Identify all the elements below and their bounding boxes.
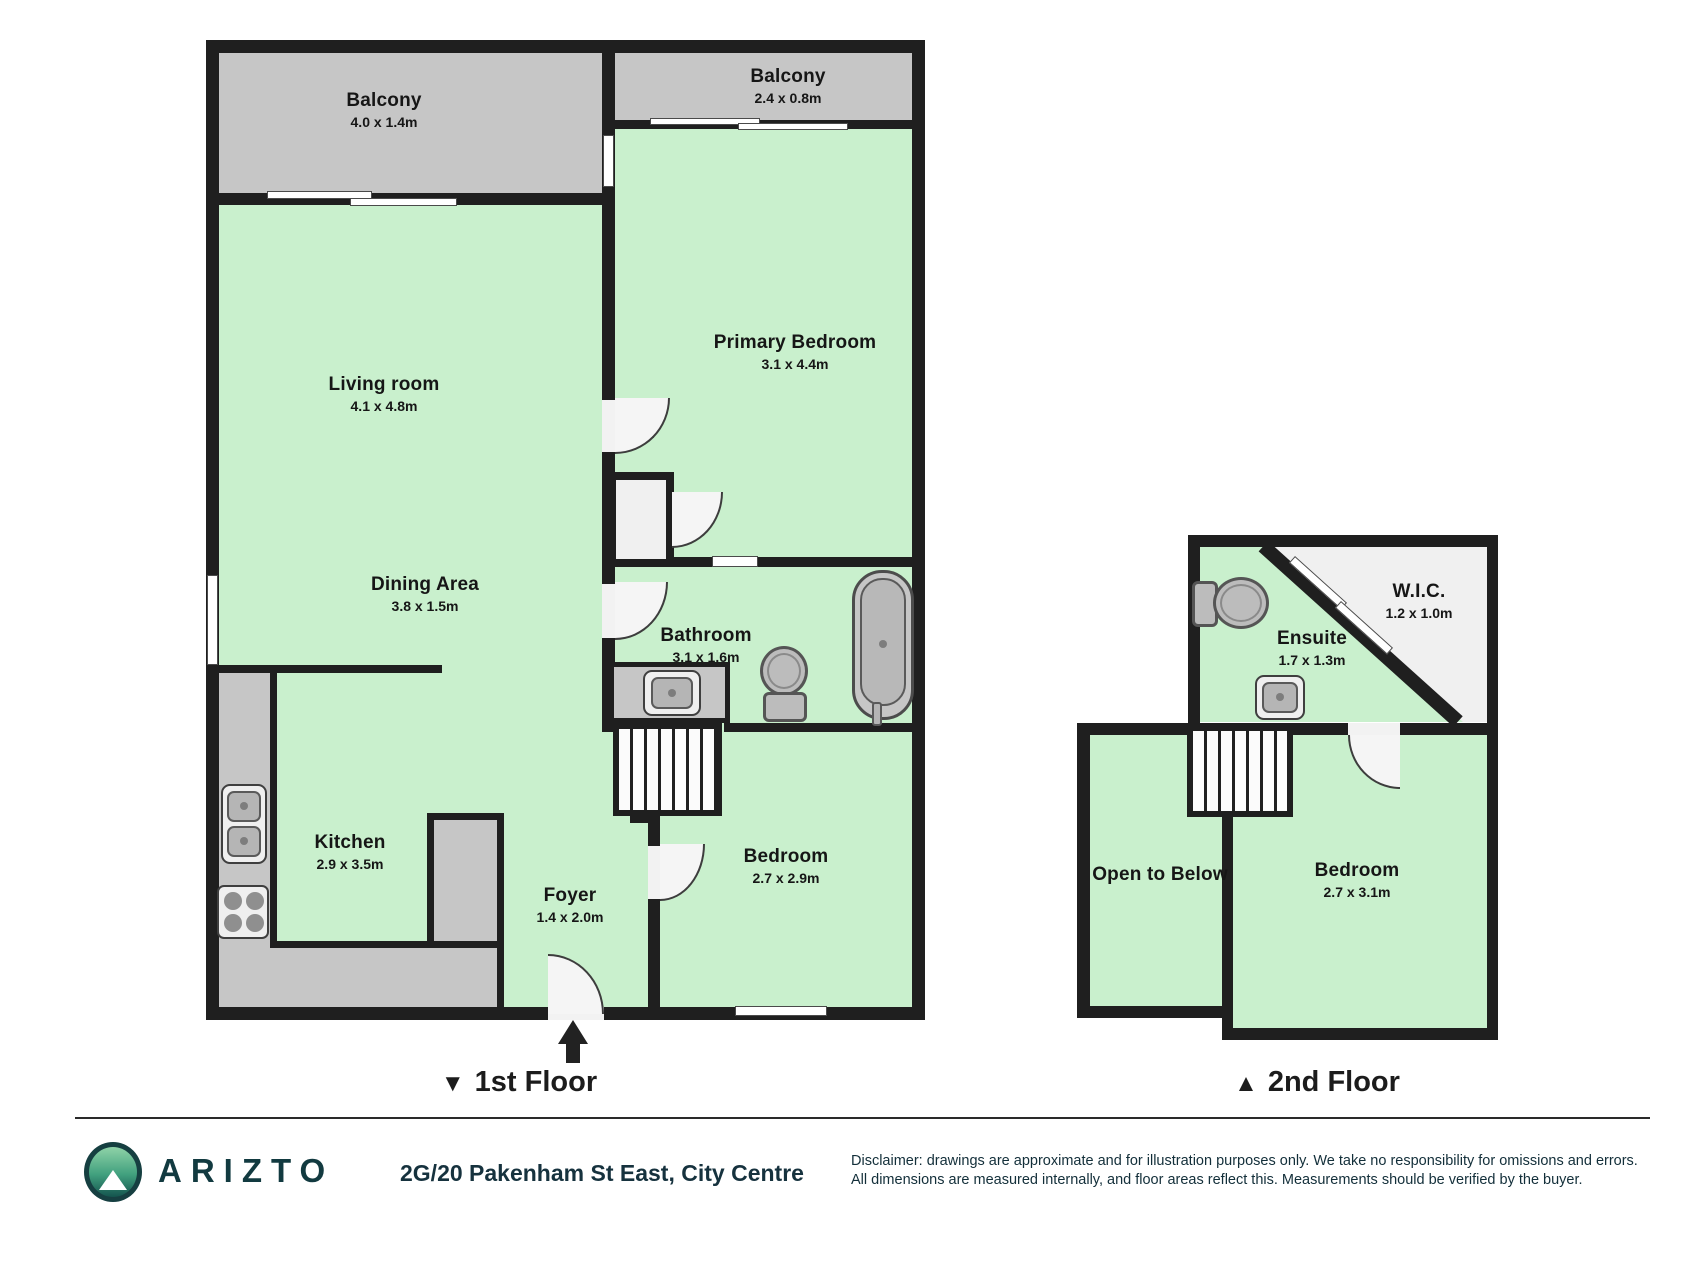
room-label-living: Living room 4.1 x 4.8m — [329, 374, 440, 414]
property-address: 2G/20 Pakenham St East, City Centre — [400, 1160, 804, 1187]
closet-interior — [616, 480, 666, 559]
sink-drain-icon — [668, 689, 676, 697]
up-triangle-icon: ▲ — [1234, 1070, 1258, 1097]
door-threshold — [1348, 723, 1400, 735]
stove-burner-icon — [246, 914, 264, 932]
f2-wall-left — [1077, 723, 1090, 1018]
counter-edge — [427, 813, 434, 948]
window — [738, 123, 848, 130]
f2-wall-divider — [1222, 815, 1233, 1040]
stove-burner-icon — [224, 892, 242, 910]
room-label-ensuite: Ensuite 1.7 x 1.3m — [1277, 628, 1347, 668]
f1-wall-right — [912, 40, 925, 1020]
f1-wall-top — [206, 40, 925, 53]
brand-name: ARIZTO — [158, 1152, 334, 1190]
counter-edge — [270, 665, 277, 948]
counter-edge — [427, 813, 504, 820]
floorplan-page: Balcony 4.0 x 1.4m Balcony 2.4 x 0.8m Li… — [0, 0, 1707, 1280]
f2-wall-open-bottom — [1077, 1006, 1233, 1018]
stove-icon — [217, 885, 269, 939]
room-label-bedroom-2f: Bedroom 2.7 x 3.1m — [1315, 860, 1400, 900]
window — [735, 1006, 827, 1016]
f2-wall-right — [1487, 535, 1498, 1040]
f1-wall-peninsula — [497, 813, 504, 1014]
sink-drain-icon — [240, 802, 248, 810]
room-label-kitchen: Kitchen 2.9 x 3.5m — [314, 832, 385, 872]
bathtub-tap-icon — [872, 702, 882, 726]
f2-wall-top — [1188, 535, 1498, 547]
room-label-balcony-left: Balcony 4.0 x 1.4m — [346, 90, 421, 130]
stairs-first-floor — [613, 723, 722, 816]
entry-arrow-icon — [558, 1020, 588, 1044]
kitchen-counter-peninsula — [427, 817, 497, 1007]
room-label-dining: Dining Area 3.8 x 1.5m — [371, 574, 479, 614]
room-label-foyer: Foyer 1.4 x 2.0m — [537, 885, 604, 925]
toilet-icon — [1213, 577, 1269, 629]
window — [712, 556, 758, 567]
toilet-icon — [760, 646, 808, 696]
room-label-bedroom-1f: Bedroom 2.7 x 2.9m — [744, 846, 829, 886]
footer-divider — [75, 1117, 1650, 1119]
toilet-tank-icon — [763, 692, 807, 722]
caption-first-floor: ▼1st Floor — [441, 1066, 597, 1099]
stairs-notch — [630, 814, 652, 823]
caption-second-floor: ▲2nd Floor — [1234, 1066, 1400, 1099]
door-threshold — [648, 846, 660, 899]
room-label-wic: W.I.C. 1.2 x 1.0m — [1386, 581, 1453, 621]
f1-wall-bathroom-bottom — [724, 723, 925, 732]
stove-burner-icon — [246, 892, 264, 910]
f2-wall-ensuite-left — [1188, 535, 1200, 734]
mountain-icon — [99, 1170, 127, 1190]
arizto-logo-icon — [84, 1142, 142, 1202]
f1-wall-left — [206, 40, 219, 1020]
room-label-primary-bedroom: Primary Bedroom 3.1 x 4.4m — [714, 332, 876, 372]
door-threshold — [602, 584, 615, 638]
counter-edge — [270, 941, 497, 948]
disclaimer-line-1: Disclaimer: drawings are approximate and… — [851, 1153, 1638, 1169]
stairs-second-floor — [1187, 725, 1293, 817]
f1-wall-foyer-bedroom — [648, 815, 660, 1014]
sink-drain-icon — [240, 837, 248, 845]
disclaimer-line-2: All dimensions are measured internally, … — [851, 1172, 1583, 1188]
window — [603, 135, 614, 187]
down-triangle-icon: ▼ — [441, 1070, 465, 1097]
sink-drain-icon — [1276, 693, 1284, 701]
window — [207, 575, 218, 665]
room-label-bathroom: Bathroom 3.1 x 1.6m — [660, 625, 751, 665]
room-label-balcony-right: Balcony 2.4 x 0.8m — [750, 66, 825, 106]
room-label-open-to-below: Open to Below — [1092, 864, 1228, 886]
stove-burner-icon — [224, 914, 242, 932]
door-threshold — [602, 400, 615, 452]
f1-wall-kitchen-divider — [206, 665, 442, 673]
bathtub-drain-icon — [879, 640, 887, 648]
f2-wall-bedroom-bottom — [1222, 1028, 1498, 1040]
entry-arrow-shaft — [566, 1043, 580, 1063]
window — [350, 198, 457, 206]
